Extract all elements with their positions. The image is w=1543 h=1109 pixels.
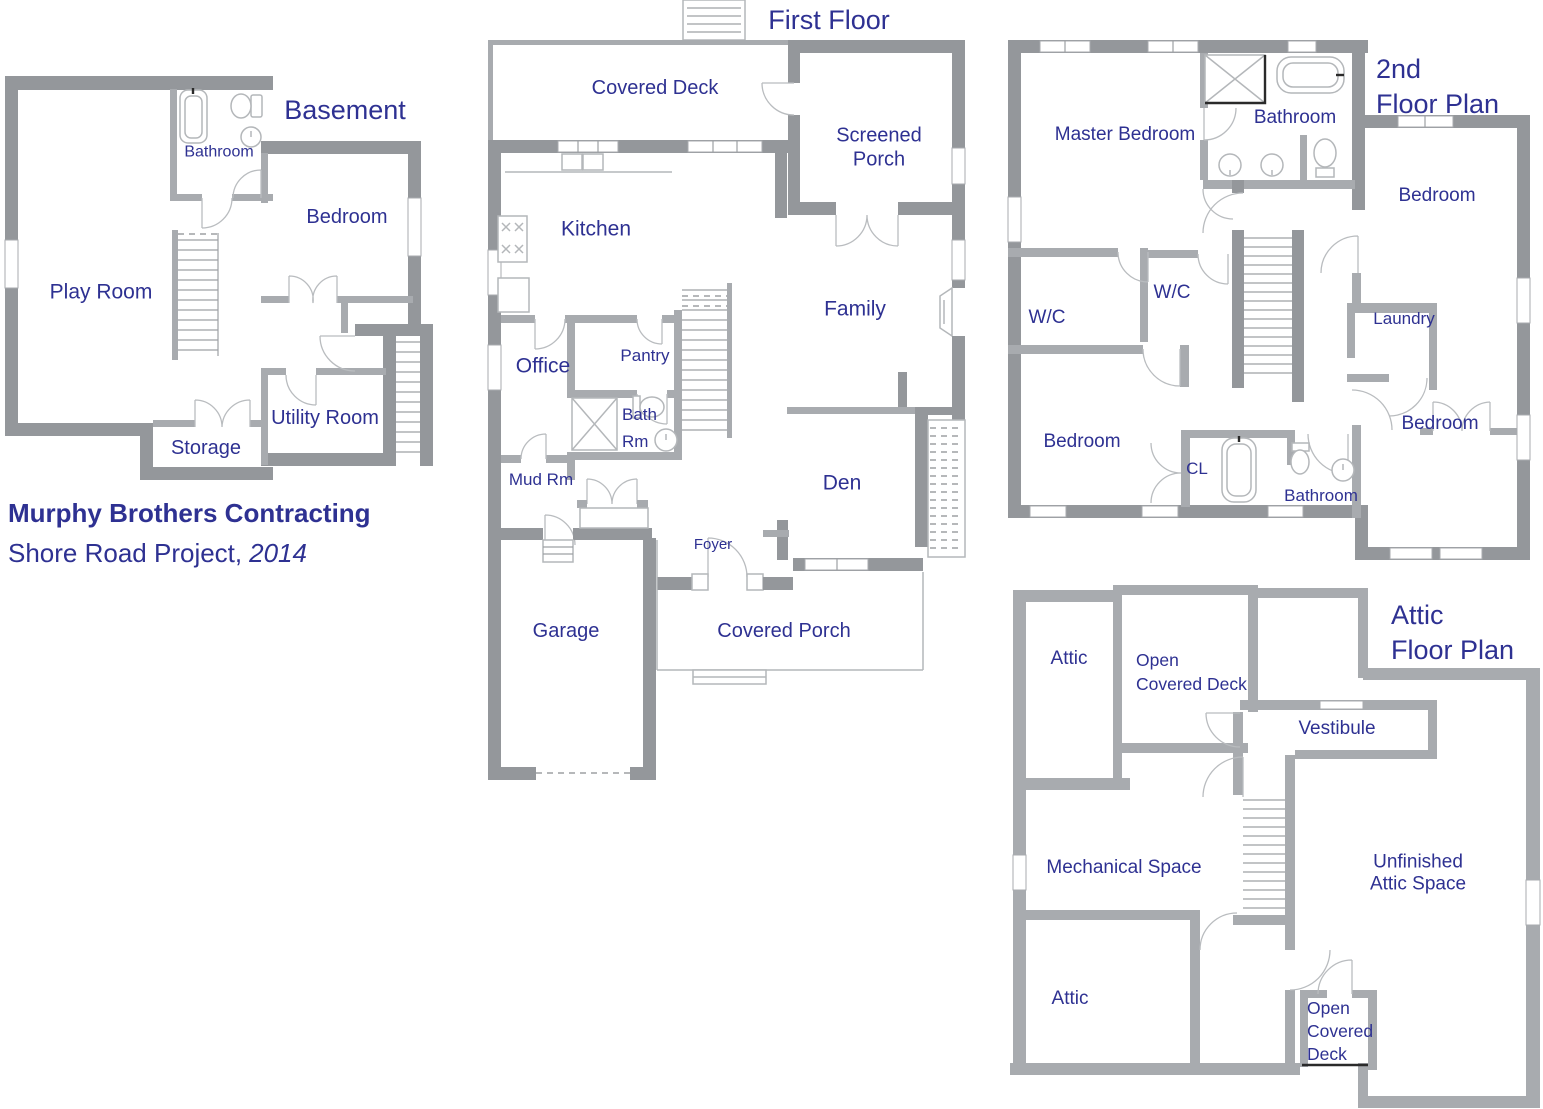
window [1440, 548, 1482, 559]
attic-stairs [1243, 800, 1285, 908]
first-floor-stairs [682, 283, 732, 438]
window [1320, 701, 1363, 709]
first-floor-plan [488, 0, 965, 780]
window [1526, 880, 1540, 925]
room-label-play-room: Play Room [50, 281, 153, 306]
room-label-bath-rm: Bath Rm [622, 401, 657, 455]
room-label-unfinished-attic: Unfinished Attic Space [1356, 852, 1481, 897]
second-floor-stairs [1232, 230, 1304, 402]
window [1030, 506, 1066, 517]
shower-icon [572, 398, 617, 450]
bathtub-icon [1277, 57, 1344, 93]
basement-exterior-stairs [396, 342, 420, 452]
company-name: Murphy Brothers Contracting [8, 498, 371, 529]
room-label-utility-room: Utility Room [271, 407, 379, 431]
toilet-icon [1291, 443, 1309, 474]
first-floor-side-stairs [928, 420, 965, 557]
room-label-bedroom-top-right: Bedroom [1398, 185, 1475, 207]
sink-icon [655, 429, 677, 451]
window [1013, 855, 1026, 890]
window [952, 148, 965, 184]
window [488, 345, 501, 390]
window [5, 240, 18, 288]
kitchen-sink-icon [562, 154, 603, 170]
room-label-attic-bottom: Attic [1052, 988, 1089, 1010]
room-label-covered-deck: Covered Deck [592, 77, 719, 101]
floorplan-sheet: Basement Bathroom Bedroom Play Room Util… [0, 0, 1543, 1109]
room-label-mud-rm: Mud Rm [509, 470, 573, 490]
window [1517, 415, 1530, 460]
title-block: Murphy Brothers Contracting Shore Road P… [8, 498, 371, 569]
toilet-icon [1314, 139, 1336, 177]
toilet-icon [231, 94, 262, 118]
room-label-master-bedroom: Master Bedroom [1055, 124, 1195, 146]
window [1517, 278, 1530, 323]
room-label-wc-left: W/C [1029, 307, 1066, 329]
window [1142, 506, 1178, 517]
room-label-wc-center: W/C [1154, 282, 1191, 304]
room-label-bathroom-top: Bathroom [1254, 107, 1336, 129]
window [1288, 41, 1316, 52]
room-label-open-covered-deck-bottom: Open Covered Deck [1307, 997, 1373, 1066]
plan-title-second-floor: 2nd Floor Plan [1376, 52, 1499, 122]
project-name: Shore Road Project,2014 [8, 538, 371, 569]
room-label-closet: CL [1186, 459, 1208, 479]
room-label-bedroom-bottom-right: Bedroom [1401, 413, 1478, 435]
window [558, 141, 618, 152]
basement-stairs [172, 230, 218, 360]
room-label-den: Den [823, 472, 862, 497]
room-label-family: Family [824, 298, 886, 323]
fireplace-icon [940, 288, 952, 336]
fridge-icon [498, 278, 529, 312]
sink-icon [1219, 154, 1283, 176]
room-label-open-covered-deck-top: Open Covered Deck [1136, 648, 1247, 696]
stove-icon [498, 216, 527, 262]
room-label-foyer: Foyer [694, 536, 732, 554]
room-label-kitchen: Kitchen [561, 218, 631, 243]
room-label-bathroom-bottom: Bathroom [1284, 486, 1358, 506]
plan-title-first-floor: First Floor [768, 5, 890, 37]
room-label-bathroom: Bathroom [184, 144, 253, 163]
room-label-screened-porch: Screened Porch [836, 124, 922, 171]
room-label-mechanical-space: Mechanical Space [1046, 857, 1201, 879]
plan-title-basement: Basement [284, 95, 406, 127]
room-label-bedroom-bottom-left: Bedroom [1043, 431, 1120, 453]
window [688, 141, 762, 152]
room-label-laundry: Laundry [1373, 309, 1434, 329]
room-label-storage: Storage [171, 437, 241, 461]
room-label-bedroom: Bedroom [306, 206, 387, 230]
room-label-garage: Garage [533, 620, 600, 644]
sink-icon [1332, 459, 1354, 481]
room-label-covered-porch: Covered Porch [717, 620, 850, 644]
window [1008, 197, 1021, 242]
shower-icon [1205, 55, 1265, 103]
project-year: 2014 [249, 538, 307, 568]
window [408, 198, 421, 256]
bathtub-icon [1222, 436, 1256, 502]
window [952, 240, 965, 280]
first-floor-top-stairs [683, 0, 745, 40]
plan-title-attic: Attic Floor Plan [1391, 598, 1514, 668]
room-label-attic-top: Attic [1051, 648, 1088, 670]
bathtub-icon [180, 88, 207, 143]
room-label-vestibule: Vestibule [1298, 718, 1375, 740]
room-label-pantry: Pantry [620, 346, 669, 366]
room-label-office: Office [516, 355, 570, 380]
window [1390, 548, 1432, 559]
window [1268, 506, 1303, 517]
